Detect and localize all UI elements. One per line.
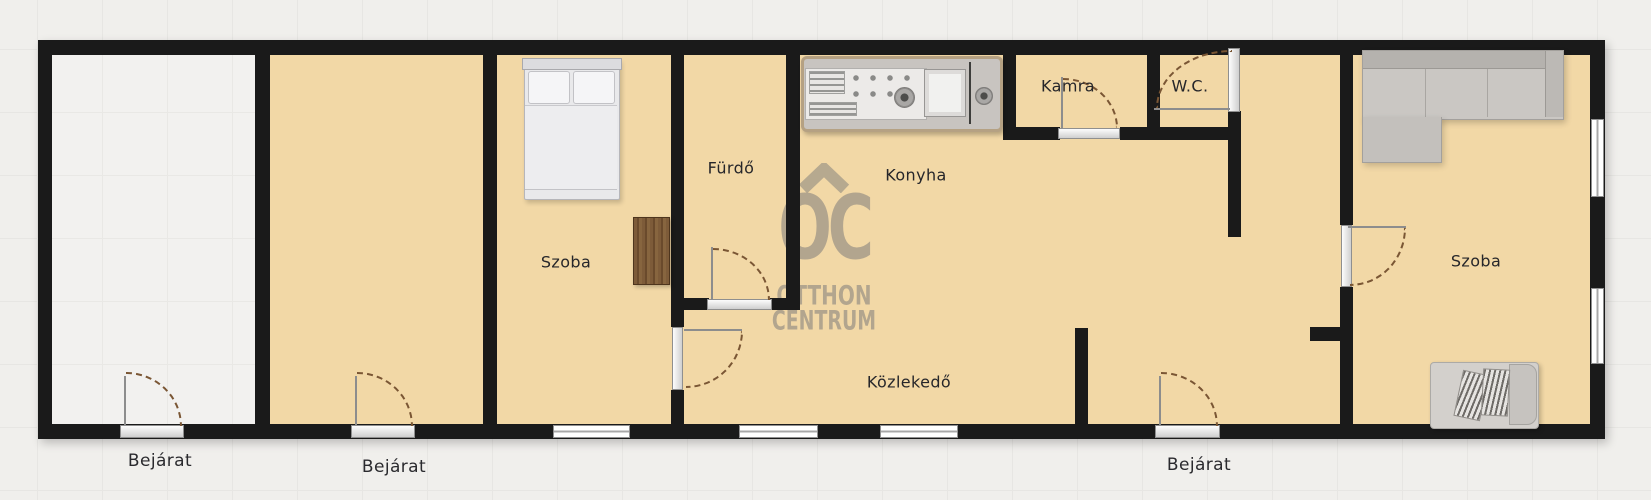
double-bed (524, 59, 620, 200)
kitchen-appliance (924, 69, 966, 117)
bed-headboard (522, 58, 622, 70)
sofa-cushion-seam (1425, 69, 1426, 117)
sink-basin (894, 87, 915, 108)
wall-segment (483, 55, 497, 424)
kitchen-counter (801, 56, 1003, 132)
entrance-door-threshold (1155, 425, 1220, 438)
entrance-door-threshold (351, 425, 415, 438)
room-label-furdo: Fürdő (708, 159, 755, 178)
counter-divider (969, 62, 971, 124)
wall-segment (1228, 111, 1241, 237)
room-label-kamra: Kamra (1041, 77, 1095, 96)
room-label-wc: W.C. (1172, 77, 1209, 96)
door-leaf (1154, 108, 1230, 110)
room-label-szoba-right: Szoba (1451, 252, 1501, 271)
window (1591, 119, 1604, 197)
window (739, 425, 818, 438)
armchair-backrest (1509, 364, 1537, 425)
dish-drainer (809, 71, 845, 94)
window (880, 425, 958, 438)
wall-segment (671, 390, 684, 424)
entrance-door-threshold (120, 425, 184, 438)
wall-segment (1120, 127, 1240, 140)
window (1591, 288, 1604, 364)
pillow (573, 71, 615, 104)
floor-plan: OC OTTHON CENTRUM (0, 0, 1651, 500)
entrance-label-right: Bejárat (1167, 455, 1231, 475)
bed-blanket (525, 105, 617, 190)
room-label-szoba-left: Szoba (541, 253, 591, 272)
sink-basin (975, 87, 993, 105)
wall-segment (1340, 287, 1353, 424)
room-label-kozlekedo: Közlekedő (867, 373, 951, 392)
armchair-cushion (1481, 368, 1510, 416)
wardrobe (633, 217, 670, 285)
wall-segment (770, 298, 800, 310)
window (553, 425, 630, 438)
wall-segment (786, 55, 800, 310)
wall-segment (1075, 328, 1088, 424)
sofa-armrest (1545, 51, 1563, 117)
entrance-label-left: Bejárat (128, 451, 192, 471)
bathroom-door-threshold (707, 299, 772, 310)
bedroom-door-threshold (672, 327, 683, 390)
armchair (1430, 362, 1539, 429)
wall-segment (1340, 55, 1353, 225)
wall-segment (1310, 327, 1343, 341)
bed-fold-line (525, 189, 617, 190)
pantry-door-threshold (1058, 128, 1120, 139)
entrance-label-middle: Bejárat (362, 457, 426, 477)
wall-segment (255, 55, 270, 424)
room-label-konyha: Konyha (885, 166, 946, 185)
corner-sofa (1362, 50, 1564, 120)
pillow (528, 71, 570, 104)
sofa-cushion-seam (1487, 69, 1488, 117)
sofa-backrest (1363, 51, 1561, 69)
corner-sofa-chaise (1362, 117, 1442, 163)
wall-segment (1003, 127, 1060, 140)
wall-segment (671, 298, 709, 310)
dish-drainer (809, 102, 857, 116)
wall-segment (671, 55, 684, 327)
